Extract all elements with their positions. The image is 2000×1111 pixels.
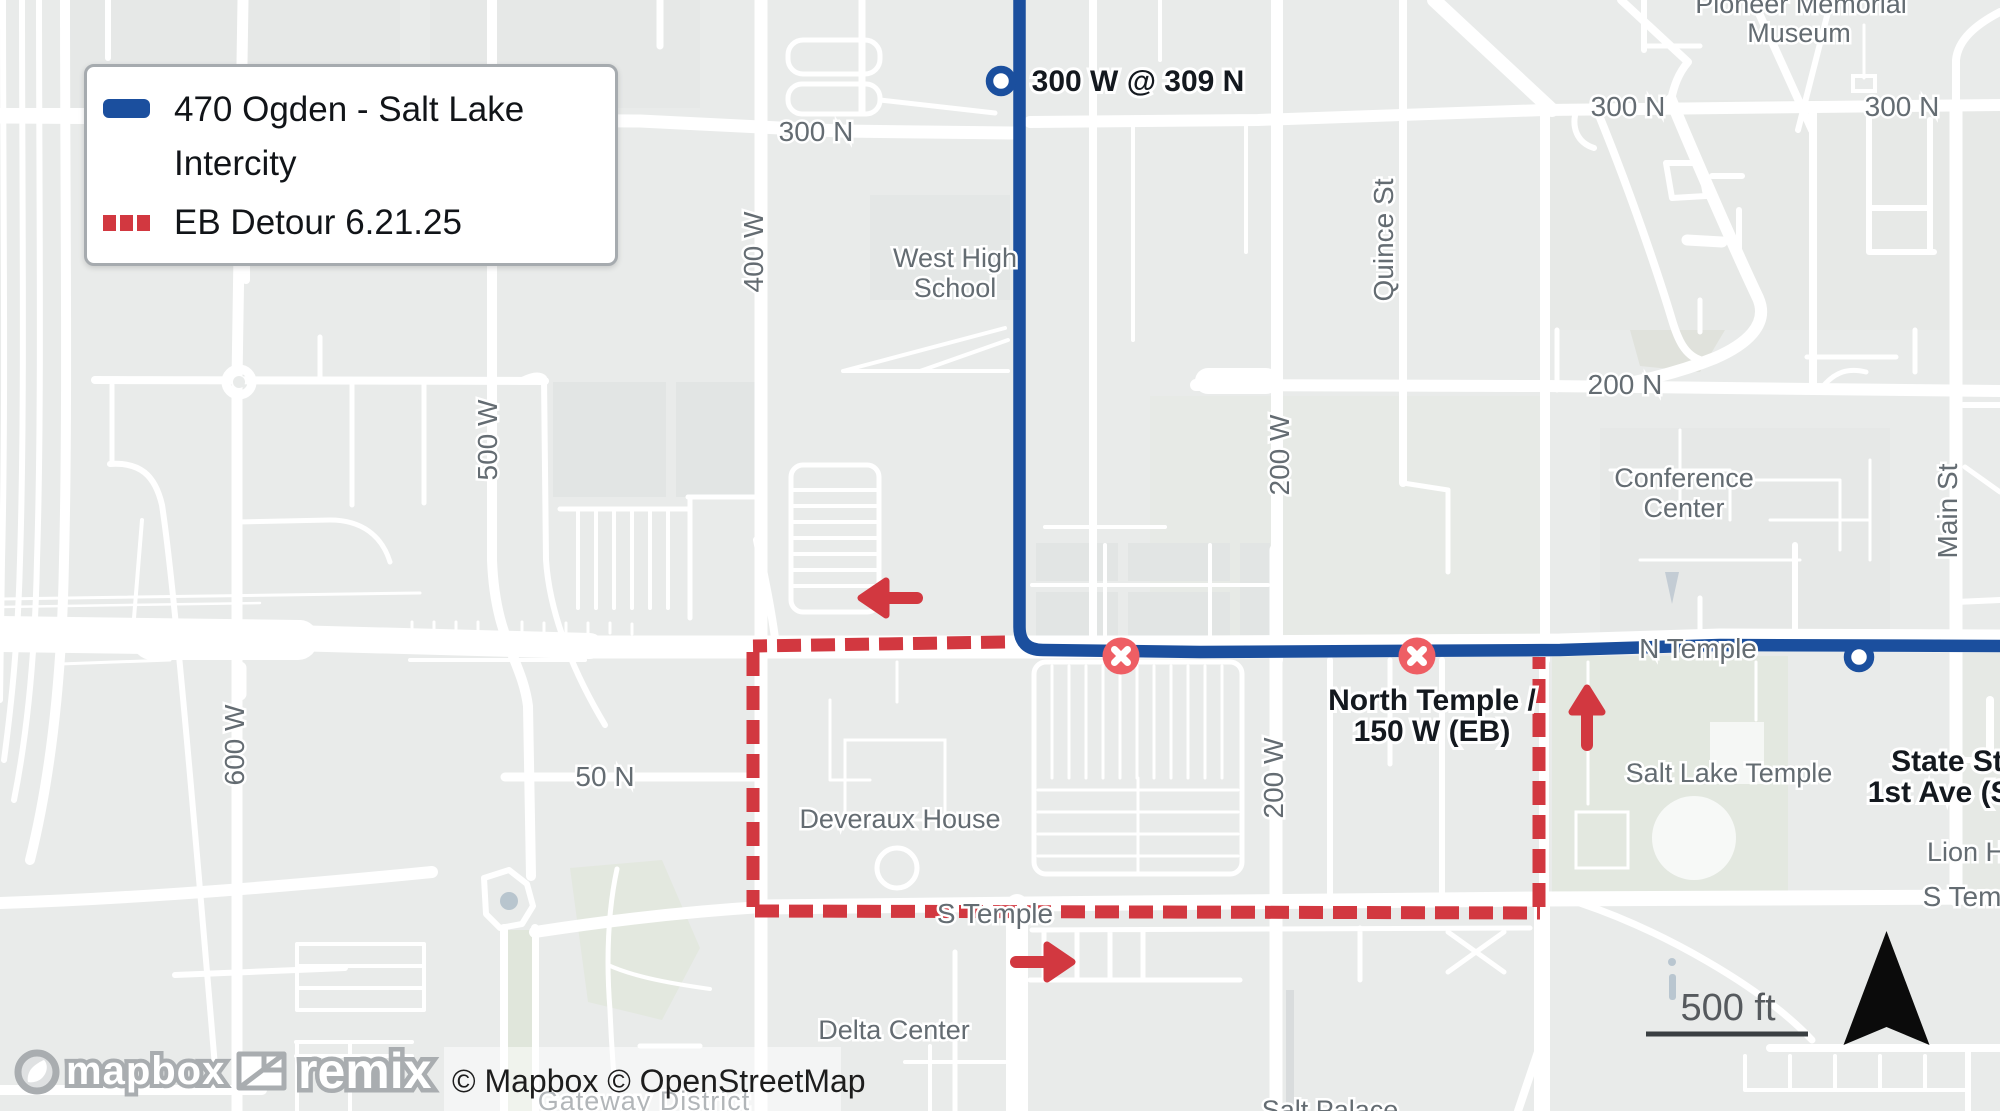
svg-text:N Temple: N Temple [1639, 633, 1757, 664]
svg-text:Salt Lake Temple: Salt Lake Temple [1626, 758, 1833, 788]
svg-text:300 N: 300 N [1591, 91, 1666, 122]
svg-text:200 W: 200 W [1264, 414, 1295, 495]
svg-text:400 W: 400 W [738, 211, 769, 292]
svg-text:Center: Center [1643, 493, 1724, 523]
svg-text:300 N: 300 N [779, 116, 854, 147]
svg-text:© Mapbox © OpenStreetMap: © Mapbox © OpenStreetMap [452, 1063, 866, 1099]
svg-text:EB Detour 6.21.25: EB Detour 6.21.25 [174, 203, 462, 242]
svg-text:mapbox: mapbox [66, 1049, 225, 1093]
svg-text:Conference: Conference [1614, 463, 1754, 493]
svg-text:Lion H: Lion H [1927, 837, 2000, 867]
svg-text:West High: West High [893, 243, 1017, 273]
svg-text:300 W @ 309 N: 300 W @ 309 N [1032, 65, 1245, 98]
svg-text:600 W: 600 W [219, 704, 250, 785]
svg-text:500 W: 500 W [472, 399, 503, 480]
svg-text:Delta Center: Delta Center [818, 1015, 970, 1045]
svg-text:S Tem: S Tem [1923, 881, 2000, 912]
svg-text:School: School [914, 273, 997, 303]
svg-text:Main St: Main St [1932, 463, 1963, 558]
svg-text:State St: State St [1891, 745, 2000, 778]
svg-text:S Temple: S Temple [937, 898, 1053, 929]
svg-text:Quince St: Quince St [1368, 178, 1399, 301]
svg-text:remix: remix [298, 1043, 432, 1099]
svg-text:50 N: 50 N [575, 761, 634, 792]
svg-text:200 W: 200 W [1258, 737, 1289, 818]
svg-text:Pioneer Memorial: Pioneer Memorial [1695, 0, 1907, 19]
svg-text:Salt Palace: Salt Palace [1262, 1095, 1399, 1111]
svg-text:Intercity: Intercity [174, 144, 297, 183]
svg-text:Museum: Museum [1747, 18, 1851, 48]
svg-text:150 W (EB): 150 W (EB) [1354, 715, 1511, 748]
svg-text:Deveraux House: Deveraux House [799, 804, 1000, 834]
svg-text:1st Ave (SB: 1st Ave (SB [1868, 776, 2000, 809]
svg-text:300 N: 300 N [1865, 91, 1940, 122]
svg-text:200 N: 200 N [1588, 369, 1663, 400]
svg-text:500 ft: 500 ft [1680, 987, 1776, 1029]
svg-text:470 Ogden - Salt Lake: 470 Ogden - Salt Lake [174, 90, 524, 129]
svg-text:North Temple /: North Temple / [1328, 684, 1536, 717]
